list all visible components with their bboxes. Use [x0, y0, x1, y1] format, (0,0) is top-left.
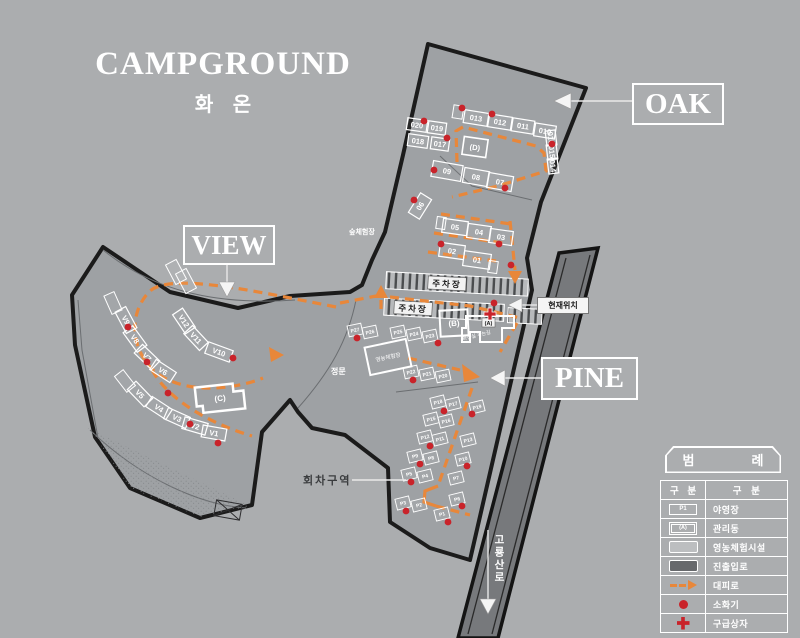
- pine-area-label: PINE: [541, 357, 638, 400]
- svg-text:03: 03: [496, 232, 506, 242]
- view-area-label: VIEW: [183, 225, 275, 265]
- road-name-label: 고룡산로: [492, 534, 507, 584]
- svg-text:09: 09: [442, 166, 452, 176]
- fire-extinguisher-marker: [464, 463, 471, 470]
- legend-row-campsite: P1 야영장: [661, 499, 787, 518]
- legend-row-first-aid: 구급상자: [661, 613, 787, 632]
- fire-extinguisher-marker: [165, 390, 172, 397]
- svg-text:01: 01: [472, 255, 482, 265]
- campsite-019: 019: [427, 121, 446, 135]
- campsite-P24: P24: [406, 327, 422, 341]
- legend-row-management: (A) 관리동: [661, 518, 787, 537]
- campsite-P20: P20: [435, 369, 451, 383]
- parking-label-1: 주차장: [432, 278, 462, 290]
- svg-text:013: 013: [469, 113, 483, 124]
- legend-banner: 범 례: [665, 446, 781, 473]
- campsite-P25: P25: [390, 325, 406, 339]
- svg-text:(B): (B): [448, 319, 460, 329]
- legend-row-access-road: 진출입로: [661, 556, 787, 575]
- legend-title-right: 례: [752, 450, 764, 469]
- first-aid-symbol: [677, 617, 690, 630]
- svg-text:018: 018: [411, 136, 425, 147]
- svg-text:02: 02: [447, 246, 457, 256]
- campsite-011: 011: [511, 118, 535, 134]
- fire-extinguisher-marker: [417, 461, 424, 468]
- campsite-018: 018: [407, 134, 428, 149]
- legend-row-farm-facility: 영농체험시설: [661, 537, 787, 556]
- evac-route-symbol: [670, 580, 697, 590]
- legend-row-fire-extinguisher: 소화기: [661, 594, 787, 613]
- campsite-P27: P27: [347, 323, 363, 337]
- fire-extinguisher-marker: [187, 421, 194, 428]
- legend: 범 례 구 분 구 분 P1 야영장 (A) 관리동 영농체험시설 진출입로 대…: [660, 446, 788, 633]
- svg-text:V1: V1: [209, 428, 220, 438]
- svg-text:(A): (A): [485, 321, 493, 327]
- fire-extinguisher-marker: [444, 135, 451, 142]
- turn-area-label: 회차구역: [303, 472, 351, 488]
- page-subtitle: 화 온: [58, 88, 388, 117]
- fire-extinguisher-marker: [403, 508, 410, 515]
- fire-extinguisher-marker: [496, 241, 503, 248]
- structure-box: [488, 260, 499, 273]
- fire-extinguisher-marker: [441, 408, 448, 415]
- fire-extinguisher-marker: [431, 167, 438, 174]
- svg-text:(D): (D): [469, 142, 481, 152]
- fire-extinguisher-symbol: [679, 600, 688, 609]
- campsite-04: 04: [467, 223, 492, 240]
- legend-header-row: 구 분 구 분: [661, 481, 787, 499]
- fire-extinguisher-marker: [230, 355, 237, 362]
- fire-extinguisher-marker: [445, 519, 452, 526]
- legend-title-left: 범: [683, 450, 695, 469]
- campsite-014: 014: [547, 158, 559, 174]
- fire-extinguisher-marker: [491, 300, 498, 307]
- campsite-P21: P21: [419, 367, 435, 381]
- svg-text:011: 011: [516, 121, 529, 132]
- fire-extinguisher-marker: [411, 197, 418, 204]
- campground-map-page: 주차장 주차장 02001901801701301201101001601501…: [0, 0, 800, 638]
- fire-extinguisher-marker: [508, 262, 515, 269]
- fire-extinguisher-marker: [427, 443, 434, 450]
- fire-extinguisher-marker: [502, 185, 509, 192]
- management-building-symbol: (A): [669, 522, 697, 535]
- fire-extinguisher-marker: [421, 118, 428, 125]
- fire-extinguisher-marker: [435, 340, 442, 347]
- legend-table: 구 분 구 분 P1 야영장 (A) 관리동 영농체험시설 진출입로 대피로 소…: [660, 480, 788, 633]
- fire-extinguisher-marker: [125, 324, 132, 331]
- current-location-badge: 현재위치: [537, 297, 589, 314]
- fire-extinguisher-marker: [549, 141, 556, 148]
- svg-text:05: 05: [450, 222, 460, 232]
- view-arrow-icon: [219, 282, 235, 297]
- fire-extinguisher-marker: [354, 335, 361, 342]
- fire-extinguisher-marker: [410, 377, 417, 384]
- fire-extinguisher-marker: [459, 105, 466, 112]
- oak-area-label: OAK: [632, 83, 724, 125]
- fire-extinguisher-marker: [144, 359, 151, 366]
- campsite-P26: P26: [362, 325, 378, 339]
- fire-extinguisher-marker: [408, 479, 415, 486]
- svg-text:019: 019: [430, 123, 444, 134]
- svg-text:(C): (C): [214, 393, 226, 403]
- svg-text:012: 012: [493, 117, 507, 128]
- page-title: CAMPGROUND: [58, 46, 388, 83]
- fire-extinguisher-marker: [469, 411, 476, 418]
- fire-extinguisher-marker: [489, 111, 496, 118]
- fire-extinguisher-marker: [459, 503, 466, 510]
- structure-box: [436, 216, 447, 229]
- svg-text:017: 017: [433, 139, 447, 150]
- farm-facility-symbol: [669, 541, 698, 553]
- forest-experience-label: 숲체험장: [349, 227, 375, 237]
- main-gate-label: 정문: [331, 366, 346, 377]
- svg-text:014: 014: [547, 159, 558, 173]
- campsite-01: 01: [463, 251, 492, 270]
- fire-extinguisher-marker: [215, 440, 222, 447]
- legend-row-evac-route: 대피로: [661, 575, 787, 594]
- parking-label-2: 주차장: [398, 303, 428, 315]
- svg-text:08: 08: [471, 172, 481, 182]
- campsite-symbol: P1: [669, 504, 697, 515]
- fire-extinguisher-marker: [438, 241, 445, 248]
- access-road-symbol: [669, 560, 698, 572]
